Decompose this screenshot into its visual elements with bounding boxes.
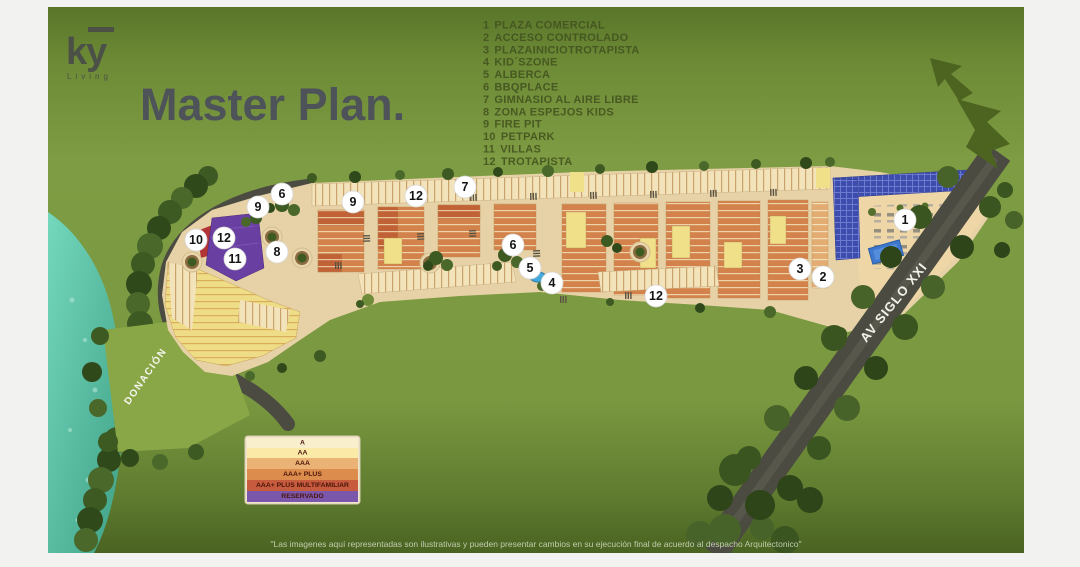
svg-text:3: 3 <box>797 262 804 276</box>
map-marker: 1 <box>894 209 916 231</box>
amenity-item: 1PLAZA COMERCIAL <box>483 20 605 32</box>
svg-text:10: 10 <box>189 233 203 247</box>
amenity-item: 6BBQPLACE <box>483 82 559 94</box>
amenity-item: 2ACCESO CONTROLADO <box>483 32 629 44</box>
map-marker: 6 <box>502 234 524 256</box>
map-marker: 6 <box>271 183 293 205</box>
logo-subtext: Living <box>67 72 112 81</box>
amenity-item: 3PLAZAINICIOTROTAPISTA <box>483 44 640 56</box>
map-marker: 12 <box>405 185 427 207</box>
legend-band-label: RESERVADO <box>281 493 323 500</box>
page-title: Master Plan. <box>140 79 405 130</box>
legend-band-label: AA <box>298 450 308 457</box>
map-marker: 12 <box>213 227 235 249</box>
lot-legend-box: A AA AAA AAA+ PLUS AAA+ PLUS MULTIFAMILI… <box>245 436 360 504</box>
legend-band-label: AAA+ PLUS <box>283 471 322 478</box>
map-marker: 8 <box>266 241 288 263</box>
map-marker: 4 <box>541 272 563 294</box>
map-marker: 3 <box>789 258 811 280</box>
master-plan-image: DONACIÓN <box>0 0 1080 567</box>
svg-text:5: 5 <box>527 261 534 275</box>
amenity-item: 10PETPARK <box>483 131 555 143</box>
svg-text:8: 8 <box>274 245 281 259</box>
amenity-item: 4KID´SZONE <box>483 57 558 69</box>
svg-text:2: 2 <box>820 270 827 284</box>
map-marker: 12 <box>645 285 667 307</box>
legend-band-label: AAA <box>295 460 310 467</box>
map-marker: 11 <box>224 248 246 270</box>
amenity-item: 11VILLAS <box>483 144 541 156</box>
logo-macron <box>88 27 114 32</box>
svg-text:11: 11 <box>228 252 241 266</box>
logo-text: ky <box>66 31 107 73</box>
svg-text:4: 4 <box>549 276 556 290</box>
map-marker: 9 <box>247 196 269 218</box>
svg-text:7: 7 <box>462 180 469 194</box>
svg-text:12: 12 <box>649 289 663 303</box>
map-marker: 5 <box>519 257 541 279</box>
svg-text:6: 6 <box>510 238 517 252</box>
master-plan-map: DONACIÓN <box>48 7 1024 553</box>
svg-text:9: 9 <box>350 195 357 209</box>
map-frame: DONACIÓN <box>48 7 1024 553</box>
svg-text:9: 9 <box>255 200 262 214</box>
svg-text:1: 1 <box>902 213 909 227</box>
amenity-item: 8ZONA ESPEJOS KIDS <box>483 106 614 118</box>
svg-text:12: 12 <box>217 231 231 245</box>
map-marker: 9 <box>342 191 364 213</box>
map-marker: 7 <box>454 176 476 198</box>
map-marker: 10 <box>185 229 207 251</box>
legend-band-label: AAA+ PLUS MULTIFAMILIAR <box>256 482 349 489</box>
svg-text:6: 6 <box>279 187 286 201</box>
svg-text:12: 12 <box>409 189 423 203</box>
amenity-item: 7GIMNASIO AL AIRE LIBRE <box>483 94 639 106</box>
disclaimer-text: "Las imagenes aquí representadas son ilu… <box>270 539 801 549</box>
map-marker: 2 <box>812 266 834 288</box>
legend-band-label: A <box>300 440 305 447</box>
